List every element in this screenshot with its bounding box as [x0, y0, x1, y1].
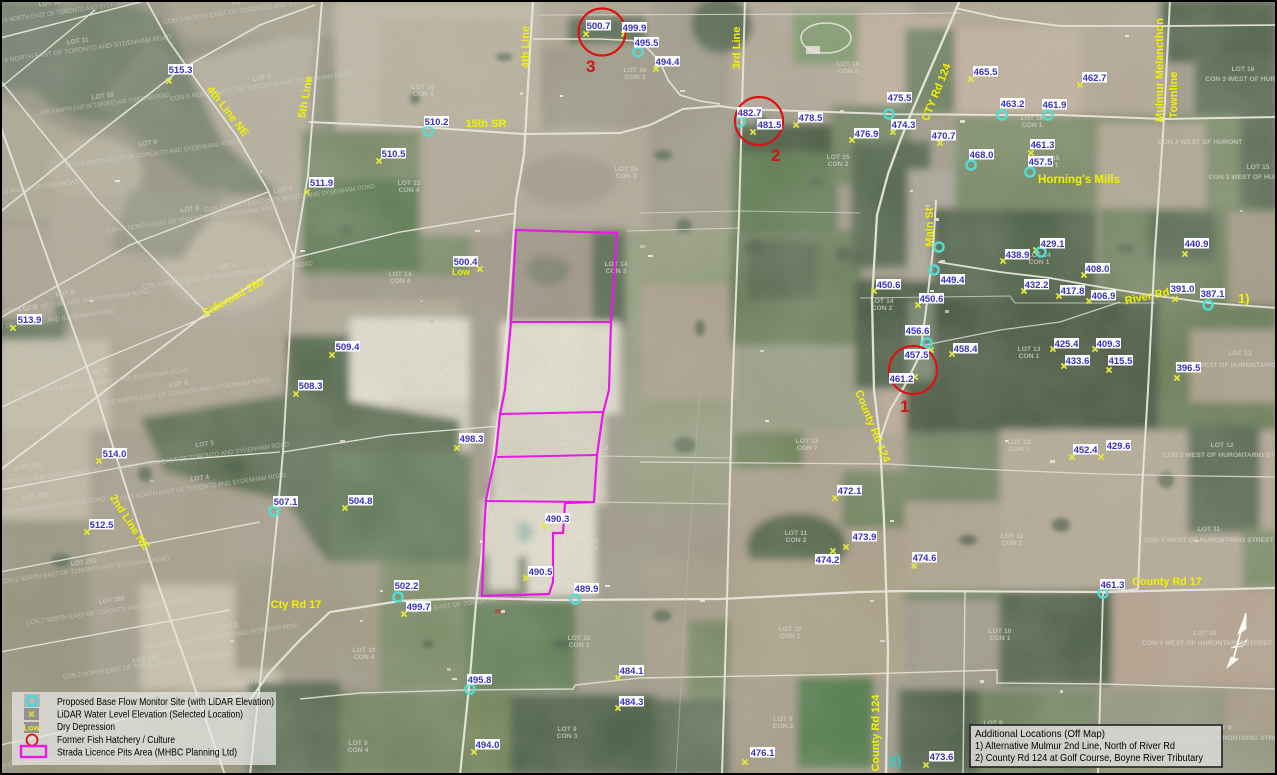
svg-text:CON 4: CON 4	[399, 187, 420, 194]
svg-text:LOT 16: LOT 16	[1231, 66, 1254, 73]
svg-text:461.2: 461.2	[890, 374, 914, 385]
svg-text:LOT 15: LOT 15	[1246, 164, 1269, 171]
svg-text:474.2: 474.2	[816, 555, 840, 566]
svg-text:500.4: 500.4	[454, 257, 478, 268]
svg-text:387.1: 387.1	[1201, 289, 1225, 300]
svg-text:CON 2: CON 2	[838, 68, 859, 75]
svg-text:396.5: 396.5	[1177, 363, 1201, 374]
svg-text:515.3: 515.3	[169, 65, 193, 76]
svg-text:CON 2: CON 2	[780, 633, 801, 640]
svg-text:LOT 10: LOT 10	[567, 635, 590, 642]
svg-text:CON 4: CON 4	[354, 654, 375, 661]
svg-text:502.2: 502.2	[395, 581, 419, 592]
svg-text:LOT 12: LOT 12	[1007, 439, 1030, 446]
svg-text:513.9: 513.9	[18, 315, 42, 326]
svg-text:511.9: 511.9	[310, 178, 333, 189]
svg-text:CON 3 WEST OF HURONTA: CON 3 WEST OF HURONTA	[1209, 174, 1277, 181]
svg-text:CON 3: CON 3	[557, 733, 578, 740]
svg-text:1: 1	[900, 397, 909, 416]
svg-text:LOT 10: LOT 10	[988, 628, 1011, 635]
svg-text:2): 2)	[888, 753, 901, 770]
svg-text:417.8: 417.8	[1061, 286, 1085, 297]
svg-text:CON 3 WEST OF HURONT: CON 3 WEST OF HURONT	[1158, 139, 1243, 146]
svg-text:CON 3: CON 3	[569, 642, 590, 649]
svg-text:LOT 9: LOT 9	[773, 716, 792, 723]
svg-text:406.9: 406.9	[1092, 291, 1116, 302]
svg-text:Main St: Main St	[924, 207, 936, 246]
svg-text:CON 3: CON 3	[616, 173, 637, 180]
svg-text:LOT 16: LOT 16	[836, 61, 859, 68]
svg-text:468.0: 468.0	[970, 150, 994, 161]
svg-text:429.1: 429.1	[1041, 239, 1065, 250]
svg-text:450.6: 450.6	[920, 294, 944, 305]
svg-text:Low: Low	[23, 723, 40, 733]
svg-text:432.2: 432.2	[1025, 280, 1049, 291]
svg-text:CON 3: CON 3	[625, 74, 646, 81]
svg-text:457.5: 457.5	[1029, 157, 1053, 168]
svg-text:499.9: 499.9	[623, 23, 647, 34]
svg-text:476.9: 476.9	[855, 129, 879, 140]
svg-text:CON 2: CON 2	[828, 161, 849, 168]
svg-text:508.3: 508.3	[299, 381, 323, 392]
svg-text:LOT 11: LOT 11	[785, 530, 808, 537]
svg-text:CON 2: CON 2	[786, 537, 807, 544]
svg-text:Townline: Townline	[1168, 72, 1180, 119]
svg-text:LOT 16: LOT 16	[1020, 115, 1043, 122]
svg-text:Proposed Base Flow Monitor Sit: Proposed Base Flow Monitor Site (with Li…	[57, 697, 274, 708]
svg-text:450.6: 450.6	[877, 280, 901, 291]
svg-text:15th SR: 15th SR	[466, 118, 507, 130]
svg-text:CON 2: CON 2	[773, 723, 794, 730]
svg-text:470.7: 470.7	[932, 131, 956, 142]
svg-text:510.2: 510.2	[425, 117, 449, 128]
svg-text:465.5: 465.5	[974, 67, 998, 78]
svg-text:LOT 12: LOT 12	[795, 438, 818, 445]
svg-text:CON 3: CON 3	[606, 268, 627, 275]
svg-text:LOT 15: LOT 15	[826, 154, 849, 161]
svg-text:494.4: 494.4	[656, 57, 680, 68]
svg-text:County Rd 124: County Rd 124	[870, 694, 882, 772]
svg-text:CON 1: CON 1	[990, 635, 1011, 642]
svg-text:CON 3 WEST OF HURONTARIO STR: CON 3 WEST OF HURONTARIO STR	[1163, 452, 1277, 459]
svg-text:512.5: 512.5	[90, 520, 114, 531]
svg-text:429.6: 429.6	[1107, 441, 1131, 452]
svg-text:509.4: 509.4	[336, 342, 360, 353]
svg-text:474.3: 474.3	[892, 120, 916, 131]
svg-text:CON 2: CON 2	[872, 305, 893, 312]
svg-text:500.7: 500.7	[587, 21, 611, 32]
svg-text:County Rd 17: County Rd 17	[1132, 576, 1202, 588]
svg-text:510.5: 510.5	[382, 149, 406, 160]
svg-text:484.1: 484.1	[620, 666, 644, 677]
svg-text:495.8: 495.8	[468, 675, 492, 686]
svg-text:433.6: 433.6	[1066, 356, 1090, 367]
svg-text:473.9: 473.9	[853, 532, 877, 543]
svg-text:2) County Rd 124 at Golf Cours: 2) County Rd 124 at Golf Course, Boyne R…	[975, 753, 1204, 764]
svg-text:461.3: 461.3	[1101, 580, 1125, 591]
svg-text:LOT 16: LOT 16	[623, 67, 646, 74]
svg-text:Dry Depression: Dry Depression	[57, 722, 115, 733]
svg-text:415.5: 415.5	[1109, 356, 1133, 367]
svg-text:494.0: 494.0	[476, 740, 500, 751]
svg-text:482.7: 482.7	[738, 108, 762, 119]
svg-text:440.9: 440.9	[1185, 239, 1209, 250]
svg-text:CON 3 WEST OF HURO: CON 3 WEST OF HURO	[1205, 76, 1277, 83]
svg-text:Horning's Mills: Horning's Mills	[1038, 174, 1120, 186]
svg-text:LOT 11: LOT 11	[1198, 526, 1221, 533]
svg-text:Additional Locations (Off Map): Additional Locations (Off Map)	[975, 729, 1105, 740]
svg-text:CON 3 WEST OF HURONTARIO STREE: CON 3 WEST OF HURONTARIO STREET	[1144, 537, 1275, 544]
svg-text:CON 4: CON 4	[348, 747, 369, 754]
svg-text:1): 1)	[1238, 291, 1250, 306]
svg-text:481.5: 481.5	[758, 120, 782, 131]
svg-text:LOT 9: LOT 9	[557, 726, 576, 733]
svg-text:LOT 13: LOT 13	[1228, 350, 1251, 357]
svg-text:LOT 10: LOT 10	[352, 647, 375, 654]
svg-text:474.6: 474.6	[913, 553, 937, 564]
svg-text:CON 4: CON 4	[390, 278, 411, 285]
svg-text:478.5: 478.5	[799, 113, 823, 124]
svg-text:462.7: 462.7	[1083, 73, 1107, 84]
svg-text:3: 3	[586, 57, 595, 76]
svg-text:Mulmur Melancthon: Mulmur Melancthon	[1154, 18, 1166, 122]
svg-text:LOT 14: LOT 14	[388, 271, 411, 278]
svg-text:507.1: 507.1	[274, 497, 298, 508]
svg-text:CON 3 WEST OF HURONTARIO STREE: CON 3 WEST OF HURONTARIO STREET	[1142, 640, 1273, 647]
svg-text:476.1: 476.1	[751, 748, 775, 759]
svg-text:490.3: 490.3	[546, 514, 570, 525]
svg-text:461.9: 461.9	[1043, 100, 1067, 111]
svg-text:LOT 15: LOT 15	[397, 180, 420, 187]
svg-text:504.8: 504.8	[349, 496, 373, 507]
svg-text:461.3: 461.3	[1031, 140, 1055, 151]
svg-text:498.3: 498.3	[460, 434, 484, 445]
svg-text:LOT 10: LOT 10	[778, 626, 801, 633]
svg-text:LOT 12: LOT 12	[1210, 442, 1233, 449]
svg-text:457.5: 457.5	[905, 350, 929, 361]
svg-text:LOT 11: LOT 11	[1001, 533, 1024, 540]
svg-text:CON 1: CON 1	[1002, 540, 1023, 547]
svg-text:CON 1: CON 1	[1009, 446, 1030, 453]
svg-text:452.4: 452.4	[1074, 445, 1098, 456]
svg-text:Former Fish Hatchery / Culture: Former Fish Hatchery / Culture	[57, 735, 175, 746]
svg-text:4th Line: 4th Line	[520, 26, 532, 68]
svg-text:2: 2	[771, 146, 780, 165]
svg-text:409.3: 409.3	[1097, 339, 1121, 350]
svg-text:CON 2: CON 2	[797, 445, 818, 452]
svg-text:475.5: 475.5	[888, 93, 912, 104]
svg-text:LOT 13: LOT 13	[1017, 346, 1040, 353]
svg-text:CON 1: CON 1	[1029, 259, 1050, 266]
svg-text:490.5: 490.5	[529, 567, 553, 578]
svg-text:438.9: 438.9	[1006, 250, 1030, 261]
svg-text:LOT 16: LOT 16	[411, 84, 434, 91]
svg-text:LOT 10: LOT 10	[1193, 630, 1216, 637]
svg-text:Cty Rd 17: Cty Rd 17	[271, 599, 322, 611]
svg-text:CON 1: CON 1	[1022, 122, 1043, 129]
svg-text:489.9: 489.9	[575, 584, 599, 595]
svg-text:CON 1: CON 1	[1019, 353, 1040, 360]
svg-text:LiDAR Water Level Elevation (S: LiDAR Water Level Elevation (Selected Lo…	[57, 710, 243, 721]
svg-text:514.0: 514.0	[103, 449, 127, 460]
svg-text:499.7: 499.7	[407, 602, 431, 613]
svg-text:408.0: 408.0	[1086, 264, 1110, 275]
svg-text:458.4: 458.4	[954, 344, 978, 355]
svg-text:484.3: 484.3	[620, 697, 644, 708]
svg-text:473.6: 473.6	[930, 752, 954, 763]
svg-text:495.5: 495.5	[635, 38, 659, 49]
svg-text:391.0: 391.0	[1171, 284, 1195, 295]
svg-text:472.1: 472.1	[838, 486, 862, 497]
svg-text:Strada Licence Pits Area (MHBC: Strada Licence Pits Area (MHBC Planning …	[57, 747, 237, 758]
svg-text:1) Alternative Mulmur 2nd Line: 1) Alternative Mulmur 2nd Line, North of…	[975, 741, 1175, 752]
svg-text:Low: Low	[452, 267, 471, 277]
svg-text:LOT 14: LOT 14	[870, 298, 893, 305]
svg-text:425.4: 425.4	[1055, 339, 1079, 350]
svg-text:CON 4: CON 4	[413, 91, 434, 98]
svg-text:LOT 9: LOT 9	[348, 740, 367, 747]
svg-text:463.2: 463.2	[1001, 99, 1025, 110]
svg-text:LOT 15: LOT 15	[614, 166, 637, 173]
svg-text:449.4: 449.4	[941, 275, 965, 286]
svg-text:456.6: 456.6	[906, 326, 930, 337]
svg-text:3rd Line: 3rd Line	[731, 27, 743, 70]
svg-text:LOT 11: LOT 11	[577, 538, 600, 545]
svg-text:CON 3: CON 3	[578, 545, 599, 552]
